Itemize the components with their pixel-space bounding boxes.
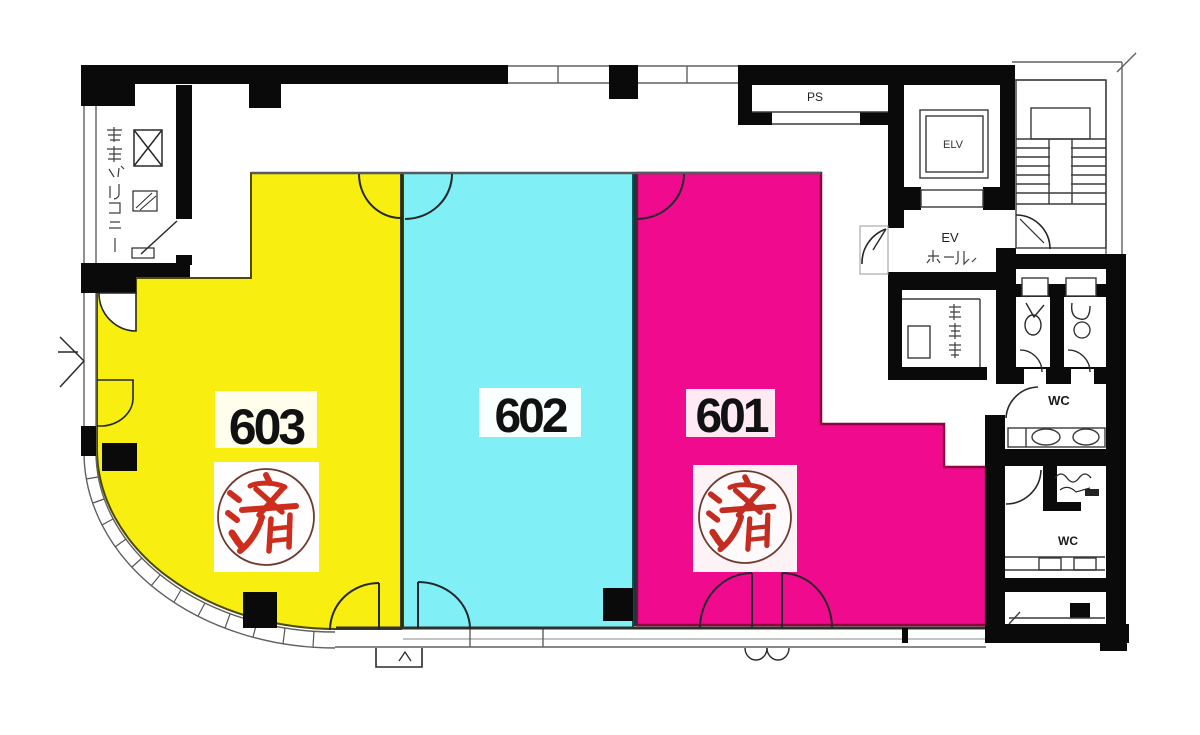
svg-text:602: 602	[494, 390, 566, 443]
svg-text:WC: WC	[1048, 393, 1070, 408]
svg-text:EV: EV	[941, 230, 959, 245]
svg-text:WC: WC	[1058, 534, 1078, 548]
svg-text:603: 603	[229, 399, 305, 455]
svg-text:ELV: ELV	[943, 139, 964, 151]
svg-text:PS: PS	[807, 90, 823, 104]
svg-text:601: 601	[695, 390, 768, 443]
